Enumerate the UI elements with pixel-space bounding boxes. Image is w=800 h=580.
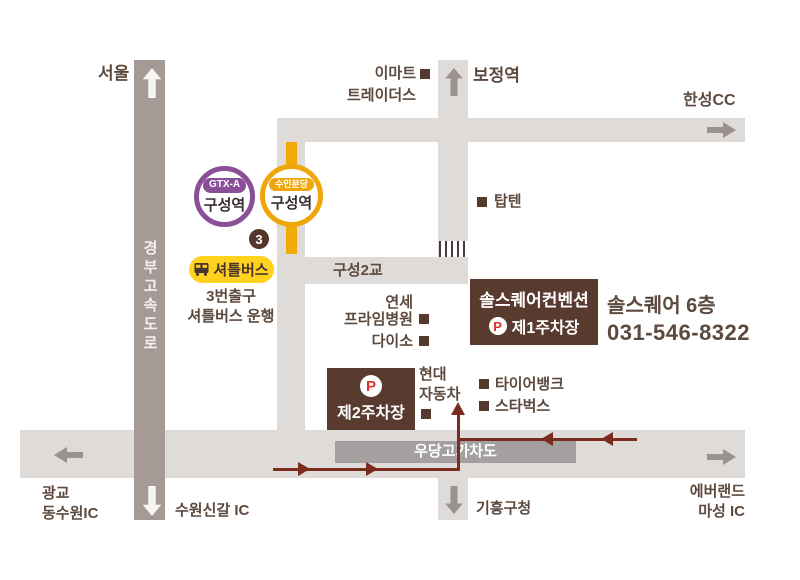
route-arrowhead-right [298, 462, 310, 476]
map-marker-icon: ■ [420, 69, 430, 79]
parking1-label: 제1주차장 [512, 314, 580, 338]
left-arrow-icon [52, 446, 84, 464]
route-arrowhead-right [366, 462, 378, 476]
landmark-daiso: 다이소 [333, 332, 413, 352]
map-marker-icon: ■ [479, 401, 489, 411]
railroad-crossing-marks [439, 241, 468, 257]
udang-overpass-box: 우당고가차도 [335, 441, 576, 463]
solsquare-convention-box: 솔스퀘어컨벤션 P 제1주차장 [470, 279, 598, 345]
up-arrow-icon [142, 68, 162, 98]
landmark-emart-line2: 트레이더스 [326, 86, 416, 106]
landmark-starbucks: 스타벅스 [495, 397, 550, 417]
map-marker-icon: ■ [421, 409, 431, 419]
shuttle-bus-label: 셔틀버스 [213, 259, 268, 280]
bus-icon [194, 263, 209, 276]
bojeong-station-label: 보정역 [473, 65, 520, 87]
station-name: 구성역 [271, 192, 312, 213]
parking2-box: P 제2주차장 [327, 368, 415, 430]
route-arrowhead-left [601, 432, 613, 446]
shuttle-bus-pill: 셔틀버스 [189, 256, 274, 283]
gyeongbu-expressway-label: 경부고속도로 [139, 240, 160, 354]
parking-icon: P [489, 317, 507, 335]
guseong2-bridge-label: 구성2교 [333, 261, 383, 281]
map-marker-icon: ■ [479, 379, 489, 389]
map-marker-icon: ■ [419, 336, 429, 346]
gtx-guseong-station-badge: GTX-A 구성역 [194, 166, 255, 227]
landmark-topten: 탑텐 [494, 192, 522, 212]
landmark-emart-line1: 이마트 [336, 64, 416, 84]
road-top-horizontal [277, 118, 745, 142]
direction-giheung-office: 기흥구청 [476, 499, 531, 519]
map-marker-icon: ■ [419, 314, 429, 324]
route-line-vertical [457, 415, 460, 471]
suinbundang-line-pill: 수인분당 [269, 178, 314, 191]
direction-suwon-singal-ic: 수원신갈 IC [175, 501, 249, 521]
venue-contact-info: 솔스퀘어 6층 031-546-8322 [607, 293, 750, 348]
venue-name: 솔스퀘어컨벤션 [479, 286, 588, 311]
down-arrow-icon [445, 486, 463, 514]
right-arrow-icon [706, 121, 738, 139]
venue-floor: 솔스퀘어 6층 [607, 293, 750, 319]
hanseong-cc-label: 한성CC [683, 91, 736, 112]
exit-3-badge: 3 [249, 229, 269, 249]
gtx-line-pill: GTX-A [203, 178, 246, 193]
venue-phone: 031-546-8322 [607, 319, 750, 348]
direction-seoul: 서울 [98, 63, 129, 85]
up-arrow-icon [445, 68, 463, 96]
route-arrowhead-left [541, 432, 553, 446]
landmark-yonsei-line2: 프라임병원 [333, 310, 413, 330]
station-name: 구성역 [204, 194, 245, 215]
map-canvas: 경부고속도로 우당고가차도 GTX-A 구성역 수인분당 구성역 3 셔틀버스 … [0, 0, 800, 580]
shuttle-note: 3번출구 셔틀버스 운행 [166, 287, 296, 326]
suinbundang-guseong-station-badge: 수인분당 구성역 [260, 164, 323, 227]
down-arrow-icon [142, 486, 162, 516]
direction-gwanggyo-dongsuwon: 광교 동수원IC [42, 484, 98, 523]
parking2-label: 제2주차장 [337, 399, 405, 423]
parking-icon: P [360, 375, 382, 397]
map-marker-icon: ■ [477, 197, 487, 207]
right-arrow-icon [706, 448, 738, 466]
direction-everland-maseong-ic: 에버랜드 마성 IC [653, 482, 745, 521]
landmark-hyundai-motors: 현대 자동차 [419, 365, 460, 404]
landmark-tirebank: 타이어뱅크 [495, 375, 564, 395]
